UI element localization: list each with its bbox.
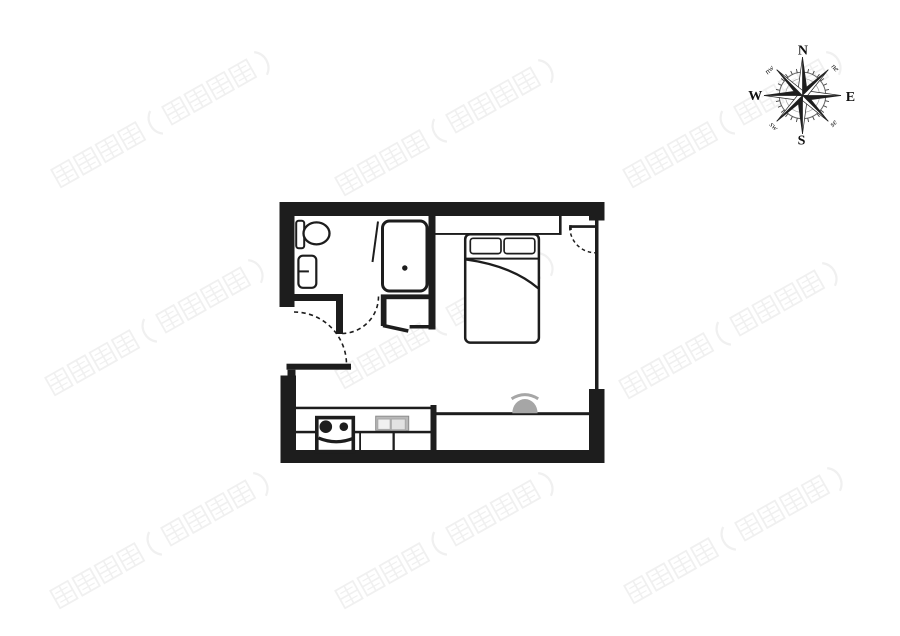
svg-text:W: W [748, 89, 762, 104]
svg-text:S: S [798, 134, 806, 149]
svg-text:E: E [846, 90, 855, 105]
svg-text:N: N [798, 44, 808, 59]
